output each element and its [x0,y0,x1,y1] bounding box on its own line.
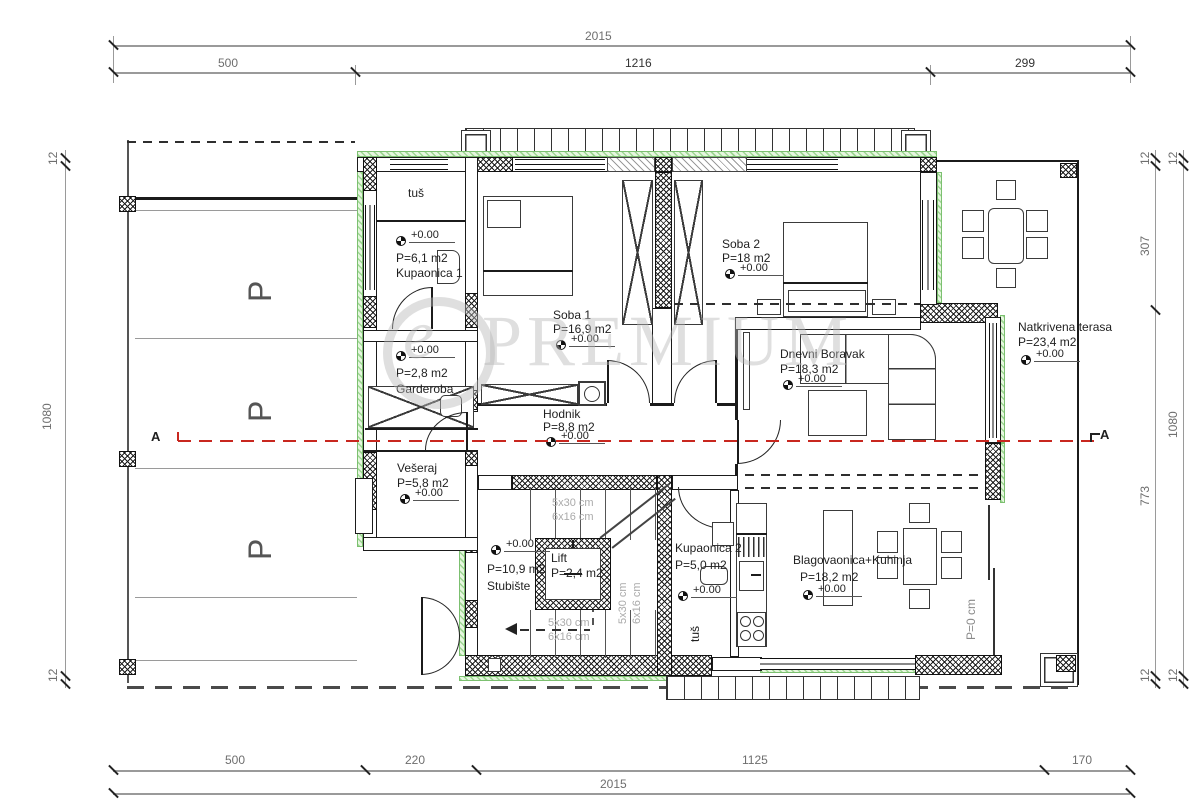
dim-label-top-total: 2015 [585,29,612,43]
stove-burner [753,616,764,627]
section-line [178,440,1094,442]
terrace-chair [1026,210,1048,232]
parking-symbol: P [240,520,282,560]
terrace-slide-rail [988,505,990,580]
wall-pier-east [985,443,1001,500]
wall-hatch-light [672,157,747,172]
dim-label: 1080 [1166,398,1180,438]
plot-boundary-left [127,140,129,683]
window-south-blagovaonica [760,658,918,670]
partition-tus [377,220,465,222]
dim-line-top-total [113,45,1130,47]
floor-plan-canvas: e PREMIUM 2015 500 1216 299 500 220 1125… [0,0,1200,805]
door-arc-soba1 [607,360,650,403]
parking-symbol: P [240,382,282,422]
wall-stair-north-open [478,475,512,490]
section-label-a-left: A [151,429,160,446]
elevation-label: +0.00 [413,487,459,501]
dim-ext-line [930,65,931,85]
section-mark-left [177,432,179,441]
overhang-dash-top-left [127,141,355,143]
parking-edge-bottom [127,660,357,661]
entry-door-arc [421,636,460,675]
dim-label: 1080 [40,390,54,430]
column [119,659,136,675]
stair-label-riser-v: 6x16 cm [630,560,644,624]
window-north-tus [390,159,448,170]
wall-south-east [915,655,1002,675]
room-label-garderoba: Garderoba [396,382,453,398]
level-marker [783,380,793,390]
dim-line-left [65,150,66,688]
stove-burner [740,630,751,641]
door-arc-kupaonica1 [392,287,432,329]
stair-label-tread: 5x30 cm [552,496,594,510]
dim-label: 500 [218,56,238,70]
dim-label: 12 [1138,660,1152,682]
dining-chair [941,531,962,553]
column [1056,655,1076,672]
level-marker [678,591,688,601]
dim-label: 1216 [625,56,652,70]
kitchen-dishrack [738,537,765,557]
dim-label: 12 [1138,143,1152,165]
elevation-label: +0.00 [409,229,455,243]
dining-chair [909,589,930,609]
level-marker [400,494,410,504]
level-marker [396,351,406,361]
elevation-label: +0.00 [691,584,737,598]
room-label-lift: Lift [551,551,567,567]
dim-label: 307 [1138,222,1152,256]
wall-pier [655,157,672,172]
door-leaf [607,360,609,403]
level-marker [546,437,556,447]
wall-veseraj-north [363,450,478,452]
dim-label: 1125 [742,753,768,767]
room-label-dnevni: Dnevni Boravak [780,347,865,363]
column [1060,163,1077,178]
terrace-door-label: P=0 cm [964,560,978,640]
terrace-slide-rail [993,568,995,655]
room-label-tus: tuš [408,186,424,202]
overhang-dash-soba2 [674,303,920,305]
wall-pier [465,293,478,328]
dining-chair [877,531,898,553]
window-north-soba1 [515,159,605,170]
k2-shower-label: tuš [688,602,704,642]
terrace-chair [996,268,1016,288]
room-area-stubiste: P=10,9 m2 [487,562,545,578]
door-arc-soba2 [674,360,717,403]
dining-chair [909,503,930,523]
wall-pier [363,296,377,328]
dining-chair [941,557,962,579]
parking-symbol: P [240,262,282,302]
column [119,451,136,467]
terrace-chair [1026,237,1048,259]
dim-label: 500 [225,753,245,767]
room-label-blagovaonica: Blagovaonica+Kuhinja [793,553,912,569]
elevation-label: +0.00 [738,262,784,276]
level-marker [725,269,735,279]
room-area-kupaonica1: P=6,1 m2 [396,251,448,267]
column [119,196,136,212]
dim-line-right-inner [1155,150,1156,688]
wall-soba2-south [735,317,921,330]
hodnik-boiler [584,386,600,402]
stair-label-tread: 5x30 cm [548,616,590,630]
terrace-edge-east [1077,160,1079,685]
door-leaf [466,412,468,450]
wardrobe-soba1 [622,180,653,325]
open-plan-dash [745,487,983,489]
door-leaf [715,360,717,403]
level-marker [491,545,501,555]
room-area-kupaonica2: P=5,0 m2 [675,558,727,574]
open-plan-dash [745,474,983,476]
window-north-soba2 [747,159,838,170]
dim-label-bottom-total: 2015 [600,777,627,791]
level-marker [803,590,813,600]
elevation-label: +0.00 [1034,348,1080,362]
nightstand [757,299,781,315]
section-label-a-right: A [1100,427,1109,444]
parking-edge-top [127,197,357,200]
stove-burner [753,630,764,641]
dim-label: 12 [1166,660,1180,682]
wall-dnevni-west-upper [735,330,738,420]
window-sill-veseraj [355,478,373,534]
stair-direction-arrow [505,623,517,635]
sofa-right [888,334,936,440]
window-soba2-east [922,200,934,290]
terrace-chair [962,237,984,259]
room-label-kupaonica2: Kupaonica 2 [675,541,742,557]
elevation-label: +0.00 [569,333,615,347]
window-west-kupaonica1 [365,205,375,290]
kitchen-faucet [751,574,761,576]
coffee-table [808,390,867,436]
wall-south-k2 [712,657,762,671]
room-area-lift: P=2,4 m2 [551,566,603,582]
lift-door-mark [572,540,574,548]
wall-kupaonica1-south [363,330,478,342]
window-dnevni-east [989,323,997,438]
room-label-kupaonica1: Kupaonica 1 [396,266,463,282]
room-label-veseraj: Vešeraj [397,461,437,477]
bed-soba2-foot [788,290,866,312]
nightstand [872,299,896,315]
wall-pier [465,600,478,628]
door-leaf [431,287,433,329]
terrace-chair [962,210,984,232]
dim-label: 299 [1015,56,1035,70]
dim-label: 12 [46,660,60,682]
hodnik-shelf [481,384,578,405]
level-marker [396,236,406,246]
wall-south-niche [488,658,501,672]
level-marker [556,340,566,350]
entry-door-leaf [421,597,423,675]
dim-line-bottom-segments [113,770,1130,772]
room-area-garderoba: P=2,8 m2 [396,366,448,382]
parking-stall-line [135,468,357,469]
entry-door-arc [421,597,460,636]
terrace-chair [996,180,1016,200]
wall-center-lower [652,308,672,405]
door-leaf [737,420,739,464]
exterior-steps-south [666,676,920,700]
terrace-table [988,208,1024,264]
parking-stall-line [135,210,357,211]
parking-stall-line [135,338,357,339]
wall-south-stair-band [465,655,712,676]
wall-pier [363,157,377,191]
parking-stall-line [135,597,357,598]
wall-inner-v-lower [465,450,478,676]
room-label-stubiste: Stubište [487,579,530,595]
wall-veseraj-south [363,537,478,551]
dim-line-top-segments [113,72,1130,74]
stair-label-riser: 6x16 cm [552,510,594,524]
section-mark-right-v [1090,433,1092,442]
wall-hodnik-north-3 [717,403,737,406]
stair-label-riser: 6x16 cm [548,630,590,644]
dim-label: 170 [1072,753,1092,767]
wall-inner-v [465,157,478,412]
dim-label: 12 [1166,143,1180,165]
insulation-strip-terrace [937,172,942,303]
door-arc-dnevni [737,420,781,464]
elevation-label: +0.00 [504,538,550,552]
dim-line-right-outer [1183,150,1184,688]
dim-label: 12 [46,143,60,165]
tv-bench [743,332,750,410]
dim-ext-line [355,65,356,85]
kitchen-divider [736,533,767,535]
plot-dash-south [127,686,1077,689]
stove-burner [740,616,751,627]
bed-soba2-blanket [783,282,868,284]
kitchen-sink [739,561,764,591]
dim-label: 773 [1138,472,1152,506]
bed-soba1-pillow [487,200,521,228]
wall-pier [920,157,937,172]
wall-pier [465,450,478,466]
level-marker [1021,355,1031,365]
wall-hatch-light [607,157,655,172]
bed-soba1-blanket [483,270,573,272]
stair-label-tread-v: 5x30 cm [616,560,630,624]
wall-hodnik-north-2 [650,403,674,406]
dim-line-bottom-total [113,793,1130,795]
terrace-edge-north [937,160,1077,162]
wall-pier-center [655,172,672,308]
elevation-label: +0.00 [409,344,455,358]
elevation-label: +0.00 [816,583,862,597]
dim-label: 220 [405,753,425,767]
elevation-label: +0.00 [796,373,842,387]
room-label-terasa: Natkrivena terasa [1018,320,1112,336]
